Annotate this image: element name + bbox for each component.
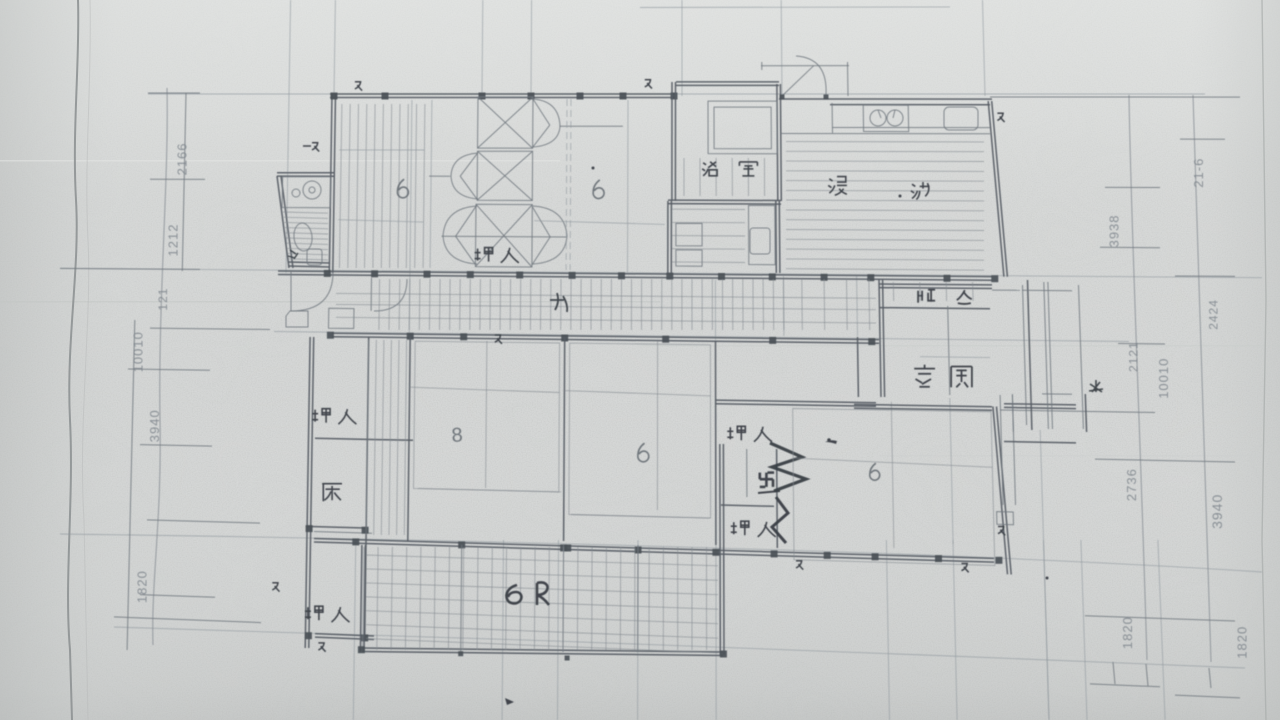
svg-text:21-6: 21-6	[1191, 158, 1206, 188]
svg-text:3938: 3938	[1107, 214, 1122, 247]
svg-text:1820: 1820	[134, 570, 149, 603]
svg-text:8: 8	[451, 424, 464, 447]
svg-text:10010: 10010	[131, 331, 146, 372]
svg-text:3940: 3940	[147, 409, 162, 442]
svg-text:2424: 2424	[1207, 299, 1221, 330]
svg-text:1820: 1820	[1120, 616, 1135, 649]
svg-text:10010: 10010	[1156, 358, 1171, 399]
svg-text:1820: 1820	[1234, 626, 1249, 659]
svg-text:3940: 3940	[1209, 494, 1225, 529]
svg-text:2736: 2736	[1124, 468, 1139, 501]
svg-text:1212: 1212	[166, 224, 181, 257]
svg-text:2121: 2121	[1126, 341, 1140, 372]
svg-text:121: 121	[156, 288, 170, 311]
svg-text:2166: 2166	[174, 142, 189, 175]
